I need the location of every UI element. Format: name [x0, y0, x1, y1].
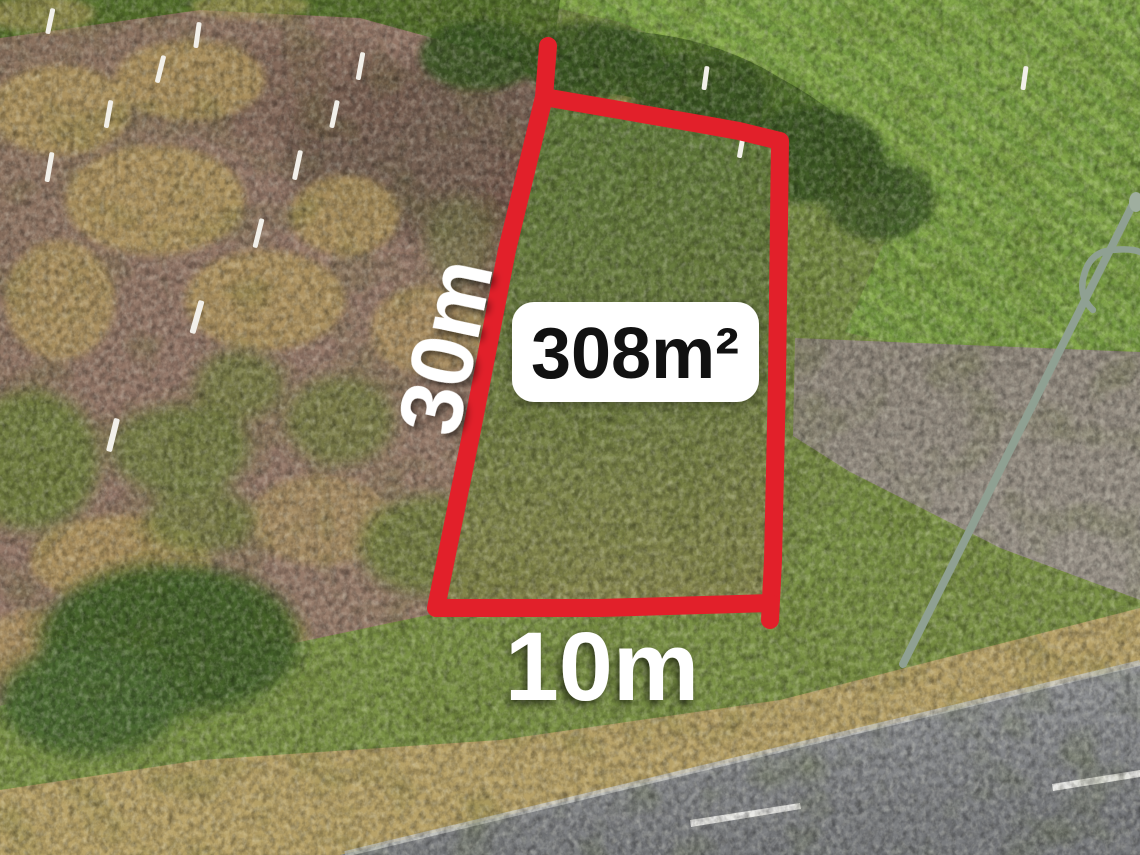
- svg-text:308m²: 308m²: [531, 314, 739, 394]
- svg-text:10m: 10m: [505, 612, 699, 721]
